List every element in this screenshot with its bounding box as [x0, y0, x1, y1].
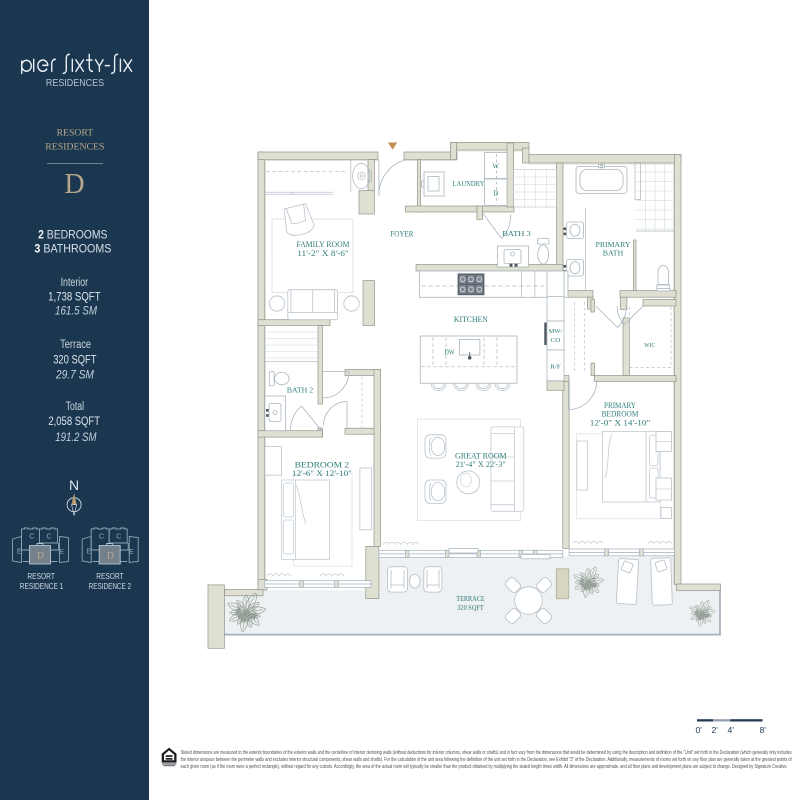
svg-text:D: D — [107, 552, 114, 562]
svg-text:W: W — [493, 163, 500, 170]
svg-text:RESIDENCES: RESIDENCES — [46, 78, 104, 89]
svg-text:Stated dimensions are measured: Stated dimensions are measured to the ex… — [181, 750, 792, 756]
svg-text:N: N — [69, 477, 79, 493]
svg-text:0': 0' — [696, 725, 703, 735]
svg-text:FOYER: FOYER — [390, 230, 413, 239]
svg-text:BATH: BATH — [603, 249, 624, 258]
svg-text:21'-4" X 22'-3": 21'-4" X 22'-3" — [456, 460, 506, 469]
svg-text:D: D — [37, 552, 44, 562]
svg-text:E: E — [87, 546, 92, 555]
svg-text:2 BEDROOMS: 2 BEDROOMS — [38, 229, 108, 241]
svg-text:RESIDENCE 2: RESIDENCE 2 — [89, 582, 132, 591]
svg-text:PRIMARY: PRIMARY — [596, 240, 631, 249]
svg-text:RESIDENCE 1: RESIDENCE 1 — [20, 582, 64, 591]
svg-text:Interior: Interior — [61, 277, 89, 289]
svg-text:12'-6" X 12'-10": 12'-6" X 12'-10" — [292, 469, 352, 478]
svg-text:C: C — [116, 532, 122, 541]
svg-text:LAUNDRY: LAUNDRY — [453, 180, 486, 188]
svg-text:RESORT: RESORT — [96, 572, 124, 581]
svg-text:C: C — [99, 532, 105, 541]
svg-text:Total: Total — [66, 401, 85, 413]
svg-text:the interior airspace between: the interior airspace between the perime… — [181, 757, 792, 763]
svg-text:29.7 SM: 29.7 SM — [55, 367, 94, 381]
svg-text:E: E — [59, 547, 64, 556]
svg-text:4': 4' — [728, 725, 735, 735]
svg-text:KITCHEN: KITCHEN — [454, 315, 488, 324]
svg-text:8': 8' — [760, 725, 767, 735]
svg-text:E: E — [129, 547, 134, 556]
svg-text:each given room (as if the roo: each given room (as if the room were a p… — [181, 764, 788, 770]
svg-text:RESORT: RESORT — [57, 127, 94, 138]
svg-text:BATH 2: BATH 2 — [287, 385, 314, 394]
svg-text:FAMILY ROOM: FAMILY ROOM — [297, 240, 351, 249]
svg-text:CO: CO — [551, 337, 561, 344]
svg-text:C: C — [46, 532, 52, 541]
svg-text:R/F: R/F — [550, 364, 561, 371]
svg-text:Terrace: Terrace — [60, 339, 91, 351]
svg-text:WIC: WIC — [644, 342, 655, 349]
svg-text:12'-0" X 14'-10": 12'-0" X 14'-10" — [590, 419, 651, 428]
svg-text:191.2 SM: 191.2 SM — [55, 430, 96, 444]
svg-text:E: E — [17, 546, 22, 555]
svg-text:D: D — [493, 190, 498, 197]
svg-text:GREAT ROOM: GREAT ROOM — [455, 451, 507, 460]
svg-text:RESORT: RESORT — [27, 572, 55, 581]
svg-text:D: D — [64, 169, 84, 200]
svg-text:RESIDENCES: RESIDENCES — [45, 141, 104, 152]
svg-text:161.5 SM: 161.5 SM — [55, 303, 97, 317]
svg-text:320 SQFT: 320 SQFT — [457, 603, 484, 612]
svg-text:C: C — [29, 532, 35, 541]
svg-text:3 BATHROOMS: 3 BATHROOMS — [34, 243, 111, 255]
svg-text:BATH 3: BATH 3 — [502, 229, 531, 238]
svg-text:1,738 SQFT: 1,738 SQFT — [48, 289, 101, 303]
svg-text:BEDROOM: BEDROOM — [602, 410, 639, 419]
svg-text:MW/: MW/ — [549, 328, 563, 335]
svg-text:320 SQFT: 320 SQFT — [53, 353, 97, 367]
svg-text:TERRACE: TERRACE — [456, 594, 485, 603]
svg-text:11'-2" X 8'-6": 11'-2" X 8'-6" — [297, 249, 349, 258]
svg-text:2,058 SQFT: 2,058 SQFT — [48, 414, 100, 428]
svg-text:2': 2' — [712, 725, 719, 735]
svg-text:DW: DW — [445, 349, 456, 356]
